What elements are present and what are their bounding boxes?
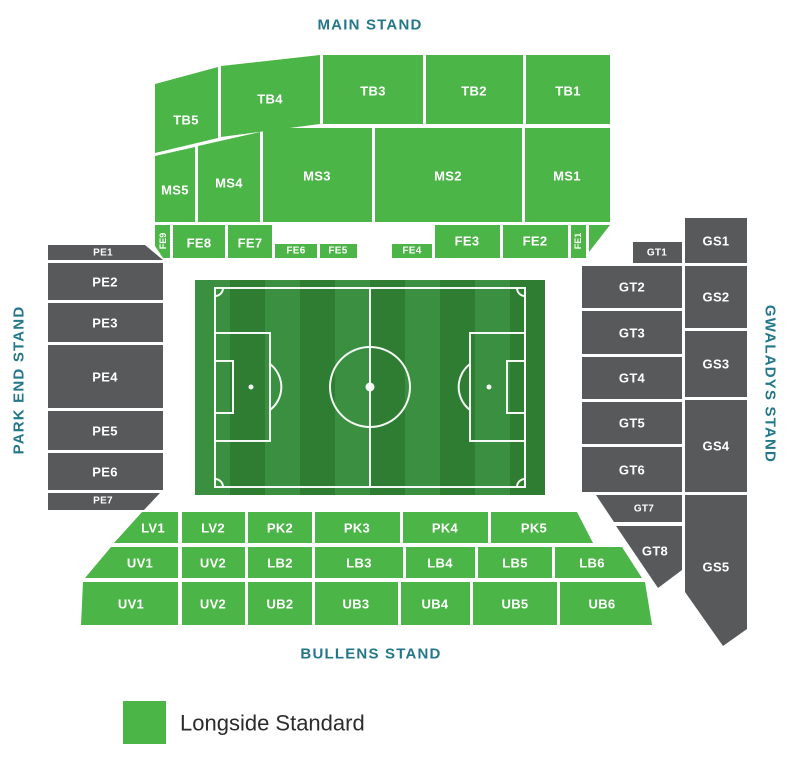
section-label: MS1 <box>553 169 581 184</box>
section-label: UB3 <box>343 597 370 612</box>
section-label: PK4 <box>432 521 459 536</box>
bullens-stand-title: BULLENS STAND <box>300 646 441 663</box>
section-tb1[interactable]: TB1 <box>526 55 610 124</box>
section-label: GS2 <box>703 290 730 305</box>
section-fe6[interactable]: FE6 <box>275 244 317 258</box>
section-ub2[interactable]: UB2 <box>248 582 312 625</box>
section-label: TB4 <box>257 92 283 107</box>
section-uv2-upper[interactable]: UV2 <box>182 547 245 578</box>
section-label: TB2 <box>461 84 486 99</box>
main-stand-title: MAIN STAND <box>317 17 422 34</box>
section-label: MS2 <box>434 169 462 184</box>
section-label: MS5 <box>161 183 189 198</box>
section-lb6[interactable]: LB6 <box>555 547 642 578</box>
section-label: GS5 <box>703 560 730 575</box>
section-gt3[interactable]: GT3 <box>582 311 682 354</box>
section-fe7[interactable]: FE7 <box>228 225 272 258</box>
section-gt4[interactable]: GT4 <box>582 357 682 399</box>
section-uv1-lower[interactable]: UV1 <box>81 582 178 625</box>
section-label: UV2 <box>200 597 226 612</box>
section-pk4[interactable]: PK4 <box>403 512 488 543</box>
section-pk5[interactable]: PK5 <box>491 512 593 543</box>
section-label: PK3 <box>344 521 370 536</box>
section-label: GT4 <box>619 371 646 386</box>
section-label: LB2 <box>267 556 292 571</box>
section-uv2-lower[interactable]: UV2 <box>182 582 245 625</box>
section-pe2[interactable]: PE2 <box>48 263 163 300</box>
section-gt2[interactable]: GT2 <box>582 266 682 308</box>
section-ms1[interactable]: MS1 <box>525 128 610 222</box>
section-fe3[interactable]: FE3 <box>435 225 500 258</box>
section-label: GS4 <box>703 439 730 454</box>
section-pe3[interactable]: PE3 <box>48 303 163 342</box>
legend: Longside Standard <box>123 701 365 744</box>
section-label: FE8 <box>187 236 212 251</box>
section-label: GT6 <box>619 463 645 478</box>
section-label: TB5 <box>173 113 198 128</box>
section-label: FE4 <box>402 246 421 257</box>
section-pe5[interactable]: PE5 <box>48 411 163 450</box>
section-label: FE3 <box>455 234 480 249</box>
section-label: UV1 <box>118 597 144 612</box>
legend-swatch-longside-standard <box>123 701 166 744</box>
section-gs4[interactable]: GS4 <box>685 400 747 492</box>
section-pe1[interactable]: PE1 <box>48 245 163 260</box>
section-label: GT3 <box>619 326 645 341</box>
section-label: FE2 <box>523 234 548 249</box>
section-label: GT5 <box>619 416 645 431</box>
section-uv1-upper[interactable]: UV1 <box>85 547 178 578</box>
section-label: FE9 <box>158 233 168 250</box>
section-lv2[interactable]: LV2 <box>182 512 245 543</box>
section-label: UB6 <box>589 597 616 612</box>
section-gt5[interactable]: GT5 <box>582 402 682 444</box>
section-label: PE5 <box>92 424 117 439</box>
section-tb3[interactable]: TB3 <box>323 55 423 124</box>
section-label: MS3 <box>303 169 331 184</box>
section-gs1[interactable]: GS1 <box>685 218 747 263</box>
section-shape[interactable] <box>155 67 218 153</box>
section-fe5[interactable]: FE5 <box>320 244 357 258</box>
section-label: MS4 <box>215 176 243 191</box>
section-fe2[interactable]: FE2 <box>503 225 568 258</box>
section-tb4[interactable]: TB4 <box>221 55 320 137</box>
section-pe4[interactable]: PE4 <box>48 345 163 408</box>
section-ms2[interactable]: MS2 <box>375 128 522 222</box>
section-label: UB4 <box>422 597 449 612</box>
section-lb4[interactable]: LB4 <box>406 547 475 578</box>
section-label: UB5 <box>502 597 529 612</box>
section-lv1[interactable]: LV1 <box>114 512 178 543</box>
legend-label-longside-standard: Longside Standard <box>180 711 365 736</box>
section-gs5[interactable]: GS5 <box>685 495 747 646</box>
section-label: GS1 <box>703 234 730 249</box>
section-label: FE6 <box>286 246 305 257</box>
section-gt7[interactable]: GT7 <box>596 495 682 522</box>
section-ub5[interactable]: UB5 <box>473 582 557 625</box>
section-label: LB6 <box>579 556 604 571</box>
section-label: TB1 <box>555 84 580 99</box>
section-lb5[interactable]: LB5 <box>478 547 552 578</box>
section-label: LB4 <box>427 556 453 571</box>
section-label: UV1 <box>127 556 153 571</box>
stadium-seat-map: MAIN STAND BULLENS STAND PARK END STAND … <box>0 0 798 766</box>
section-ub6[interactable]: UB6 <box>560 582 652 625</box>
section-pk3[interactable]: PK3 <box>315 512 400 543</box>
section-label: PK2 <box>267 521 293 536</box>
section-label: LV1 <box>141 521 165 536</box>
section-gs2[interactable]: GS2 <box>685 266 747 328</box>
section-label: GT1 <box>647 248 667 259</box>
section-label: PE6 <box>92 465 117 480</box>
section-ub4[interactable]: UB4 <box>401 582 470 625</box>
main-stand-corner-cut <box>589 225 610 252</box>
section-label: PE3 <box>92 316 117 331</box>
section-label: FE1 <box>573 233 583 250</box>
section-label: PK5 <box>521 521 547 536</box>
section-pe6[interactable]: PE6 <box>48 453 163 490</box>
section-label: LB3 <box>346 556 371 571</box>
section-label: PE2 <box>92 275 117 290</box>
section-label: UV2 <box>200 556 226 571</box>
gwaladys-stand-title: GWALADYS STAND <box>762 305 779 463</box>
section-gt6[interactable]: GT6 <box>582 447 682 492</box>
section-tb2[interactable]: TB2 <box>426 55 523 124</box>
section-lb3[interactable]: LB3 <box>315 547 403 578</box>
section-fe9[interactable]: FE9 <box>155 225 170 258</box>
football-pitch <box>195 280 545 495</box>
section-ms3[interactable]: MS3 <box>263 128 372 222</box>
section-pk2[interactable]: PK2 <box>248 512 312 543</box>
section-label: GT7 <box>634 504 654 515</box>
section-label: UB2 <box>267 597 294 612</box>
section-label: TB3 <box>360 84 385 99</box>
section-label: GS3 <box>703 357 730 372</box>
section-tb5[interactable]: TB5 <box>155 67 218 153</box>
park-end-stand-title: PARK END STAND <box>11 306 28 455</box>
section-label: LV2 <box>201 521 225 536</box>
section-label: FE7 <box>238 236 263 251</box>
section-fe4[interactable]: FE4 <box>392 244 432 258</box>
section-ub3[interactable]: UB3 <box>315 582 398 625</box>
section-label: PE4 <box>92 370 118 385</box>
section-label: PE7 <box>93 496 113 507</box>
section-lb2[interactable]: LB2 <box>248 547 312 578</box>
section-fe8[interactable]: FE8 <box>173 225 225 258</box>
section-fe1[interactable]: FE1 <box>571 225 586 258</box>
section-pe7[interactable]: PE7 <box>48 493 160 510</box>
section-label: FE5 <box>328 246 347 257</box>
section-label: GT2 <box>619 280 645 295</box>
section-ms4[interactable]: MS4 <box>198 132 260 222</box>
section-gs3[interactable]: GS3 <box>685 331 747 397</box>
section-label: PE1 <box>93 248 113 259</box>
section-label: LB5 <box>502 556 527 571</box>
section-ms5[interactable]: MS5 <box>155 147 195 222</box>
section-label: GT8 <box>642 544 668 559</box>
section-gt1[interactable]: GT1 <box>633 242 682 263</box>
